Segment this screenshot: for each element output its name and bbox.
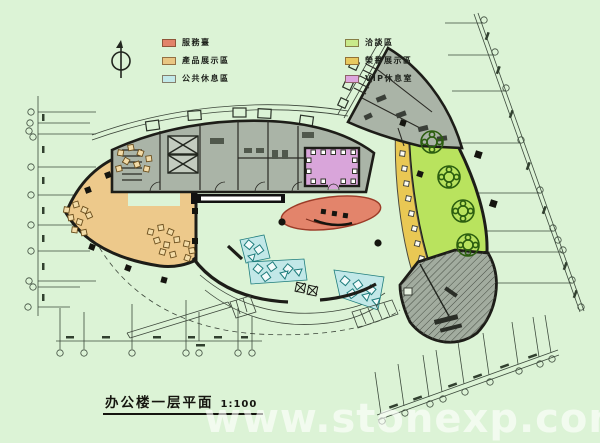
dimension-text-marks xyxy=(42,114,45,301)
legend-swatch-service-desk xyxy=(162,39,176,47)
legend-label: 洽談區 xyxy=(365,37,394,48)
north-arrow-icon xyxy=(112,40,130,78)
legend-item-honor-display: 榮譽展示區 xyxy=(345,55,413,66)
legend-item-negotiation: 洽談區 xyxy=(345,37,394,48)
legend-swatch-vip-lounge xyxy=(345,75,359,83)
legend-label: 產品展示區 xyxy=(182,55,230,66)
legend-label: 榮譽展示區 xyxy=(365,55,413,66)
lobby-walls xyxy=(193,246,398,328)
legend-item-service-desk: 服務臺 xyxy=(162,37,211,48)
dimension-text-marks xyxy=(389,353,537,408)
legend-item-vip-lounge: VIP休息室 xyxy=(345,73,413,84)
legend-swatch-public-rest xyxy=(162,75,176,83)
drawing-title: 办公楼一层平面1:100 xyxy=(103,391,263,415)
dimension-text-marks xyxy=(485,32,578,298)
zone-vip-lounge xyxy=(305,148,359,190)
page-title: 办公楼一层平面 xyxy=(105,395,214,411)
floor-plan xyxy=(0,0,600,443)
dimension-bottom xyxy=(56,300,262,356)
axis-bubbles xyxy=(25,109,36,310)
legend-label: 服務臺 xyxy=(182,37,211,48)
legend-label: VIP休息室 xyxy=(365,73,413,84)
legend-swatch-product-display xyxy=(162,57,176,65)
legend-item-product-display: 產品展示區 xyxy=(162,55,230,66)
wing-door xyxy=(404,288,412,295)
legend-item-public-rest: 公共休息區 xyxy=(162,73,230,84)
scale-label: 1:100 xyxy=(221,399,258,410)
legend-swatch-honor-display xyxy=(345,57,359,65)
display-counter xyxy=(191,193,285,204)
revolving-door xyxy=(295,282,318,296)
elevators xyxy=(168,136,198,173)
legend-label: 公共休息區 xyxy=(182,73,230,84)
zone-service-desk xyxy=(279,191,382,235)
axis-bubbles xyxy=(481,17,584,310)
legend-swatch-negotiation xyxy=(345,39,359,47)
axis-bubbles xyxy=(57,350,255,356)
